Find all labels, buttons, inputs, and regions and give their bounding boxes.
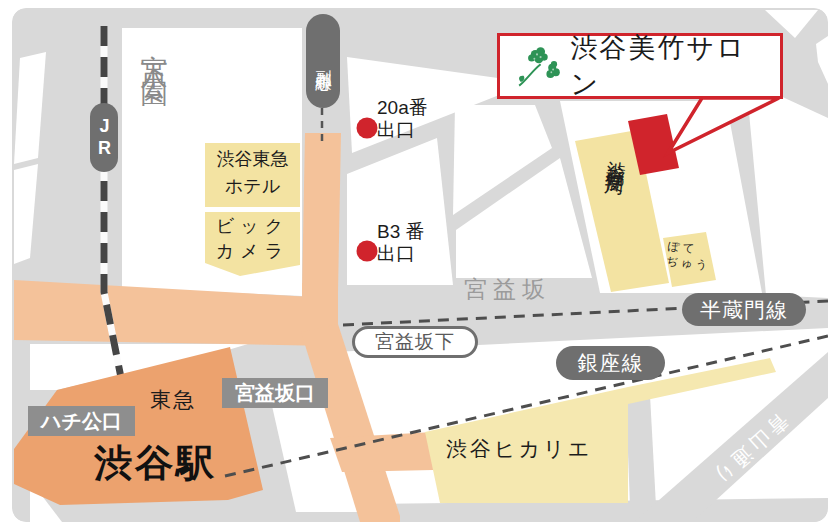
fukutoshin-line-label: 副都心線 <box>313 57 334 65</box>
miyamasuzaka-street-label: 宮益坂 <box>464 274 551 305</box>
road-to-hikarie <box>330 432 433 472</box>
bic-camera-line1: ビック <box>205 214 300 239</box>
bic-camera-line2: カメラ <box>205 239 300 264</box>
salon-title: 渋谷美竹サロン <box>571 30 774 102</box>
hanzomon-line-badge: 半蔵門線 <box>682 293 806 326</box>
jr-line-badge: JR <box>90 103 118 172</box>
tokyu-hotel-line2: ホテル <box>205 173 300 200</box>
shibuya-access-map: JR 宮下公園 副都心線 20a番 出口 B3 番 出口 渋谷東急 ホテル ビッ… <box>0 0 840 530</box>
exit-b3-dot-icon <box>357 241 378 262</box>
miyamasuzakashita-label: 宮益坂下 <box>375 329 455 355</box>
miyamasuzaka-exit-label: 宮益坂口 <box>235 380 315 407</box>
potejyu-label: ぽて ぢゅう <box>666 239 713 273</box>
exit-20a-label: 20a番 出口 <box>377 97 428 141</box>
salon-callout: 渋谷美竹サロン <box>497 33 783 99</box>
tokyu-hotel-label: 渋谷東急 ホテル <box>205 146 300 200</box>
ginza-line-label: 銀座線 <box>578 349 644 377</box>
exit-b3-line2: 出口 <box>377 243 425 265</box>
fukutoshin-line-badge: 副都心線 <box>306 14 340 108</box>
hanzomon-line-label: 半蔵門線 <box>700 296 788 324</box>
tokyu-hotel-line1: 渋谷東急 <box>205 146 300 173</box>
exit-b3-line1: B3 番 <box>377 221 425 243</box>
miyamasuzakashita-badge: 宮益坂下 <box>352 326 478 358</box>
jr-line-label: JR <box>94 116 115 160</box>
road-meiji-dori-north <box>302 133 341 292</box>
exit-20a-line1: 20a番 <box>377 97 428 119</box>
exit-20a-line2: 出口 <box>377 119 428 141</box>
tokyu-label: 東急 <box>150 386 196 414</box>
hachiko-exit-badge: ハチ公口 <box>28 406 135 436</box>
exit-b3-label: B3 番 出口 <box>377 221 425 265</box>
ginza-line-badge: 銀座線 <box>556 346 665 380</box>
salon-flower-icon <box>512 41 566 91</box>
shibuya-station-label: 渋谷駅 <box>94 438 217 489</box>
hikarie-label: 渋谷ヒカリエ <box>446 435 592 463</box>
miyamasuzaka-exit-badge: 宮益坂口 <box>222 378 328 408</box>
bic-camera-label: ビック カメラ <box>205 214 300 264</box>
hachiko-exit-label: ハチ公口 <box>41 408 122 435</box>
exit-20a-dot-icon <box>357 118 378 139</box>
miyashita-park-label: 宮下公園 <box>136 33 172 193</box>
